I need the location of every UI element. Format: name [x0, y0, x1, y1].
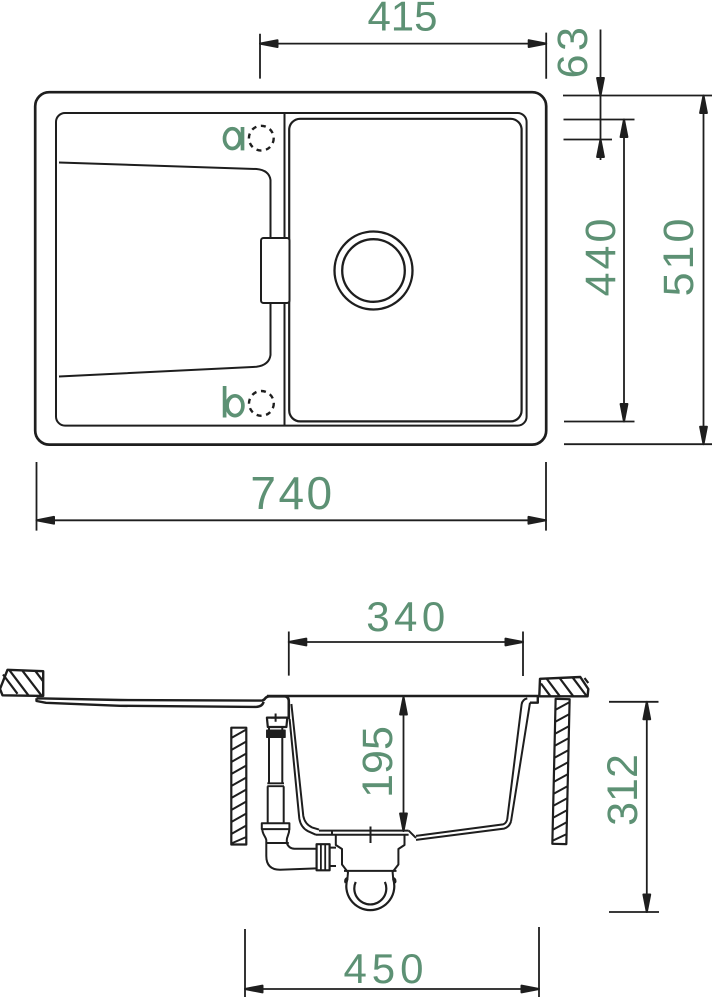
svg-text:63: 63 — [549, 24, 597, 79]
svg-text:312: 312 — [599, 754, 647, 826]
svg-text:510: 510 — [655, 216, 703, 297]
svg-text:440: 440 — [577, 216, 625, 297]
svg-text:195: 195 — [354, 726, 402, 798]
svg-text:450: 450 — [343, 945, 428, 992]
svg-text:415: 415 — [367, 0, 437, 40]
svg-text:740: 740 — [250, 467, 334, 519]
svg-text:340: 340 — [366, 593, 450, 640]
